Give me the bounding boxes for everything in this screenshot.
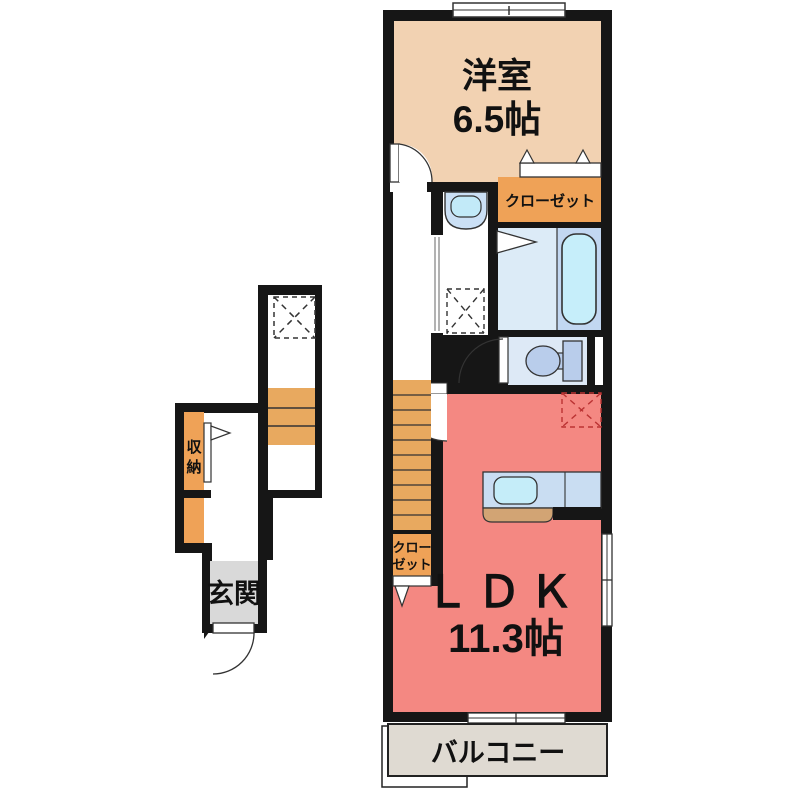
toilet-bowl-icon [526, 346, 560, 376]
corridor-1f [212, 543, 258, 561]
hall-2f [393, 192, 431, 380]
toilet-tank-icon [563, 341, 582, 381]
entrance-door-arc [213, 633, 254, 674]
window-top [453, 3, 565, 17]
entrance-door [213, 623, 254, 633]
ldk-label: ＬＤＫ [425, 568, 581, 617]
kitchen [483, 472, 601, 522]
stair-closet-label: ゼット [392, 557, 431, 572]
sliding-door [431, 235, 443, 333]
bathtub-icon [562, 234, 596, 324]
western-room-area: 6.5帖 [453, 99, 541, 140]
floor-plan-page: 収 納 玄関 洋室 6.5帖 [0, 0, 800, 800]
kitchen-counter-edge [483, 508, 553, 522]
storage-closet-lower [184, 498, 204, 543]
window-right [601, 534, 612, 626]
vanity-basin-icon [451, 196, 481, 217]
wall [553, 507, 601, 520]
washroom [443, 192, 488, 335]
storage-door [204, 423, 211, 482]
toilet-door [499, 337, 508, 383]
stair-closet-label: クロー [392, 540, 431, 555]
ldk-area: 11.3帖 [448, 617, 564, 661]
storage-label: 収 [186, 438, 202, 456]
storage-label: 納 [186, 458, 201, 476]
kitchen-sink-icon [494, 477, 537, 504]
balcony-label: バルコニー [431, 738, 565, 768]
stair-closet-door [393, 576, 431, 586]
western-room-label: 洋室 [462, 56, 532, 96]
closet-bifold-door [520, 163, 601, 177]
closet-label: クローゼット [505, 192, 595, 210]
bathroom [497, 228, 601, 330]
wall [262, 490, 273, 560]
entrance-label: 玄関 [207, 578, 261, 609]
stairs-2f [393, 380, 431, 530]
stairs-1f [268, 388, 315, 445]
balcony: バルコニー [382, 724, 607, 787]
pipe-space [595, 337, 603, 385]
window-balcony [468, 713, 565, 723]
entrance: 玄関 [204, 561, 261, 674]
floor-plan-drawing: 収 納 玄関 洋室 6.5帖 [0, 0, 800, 800]
